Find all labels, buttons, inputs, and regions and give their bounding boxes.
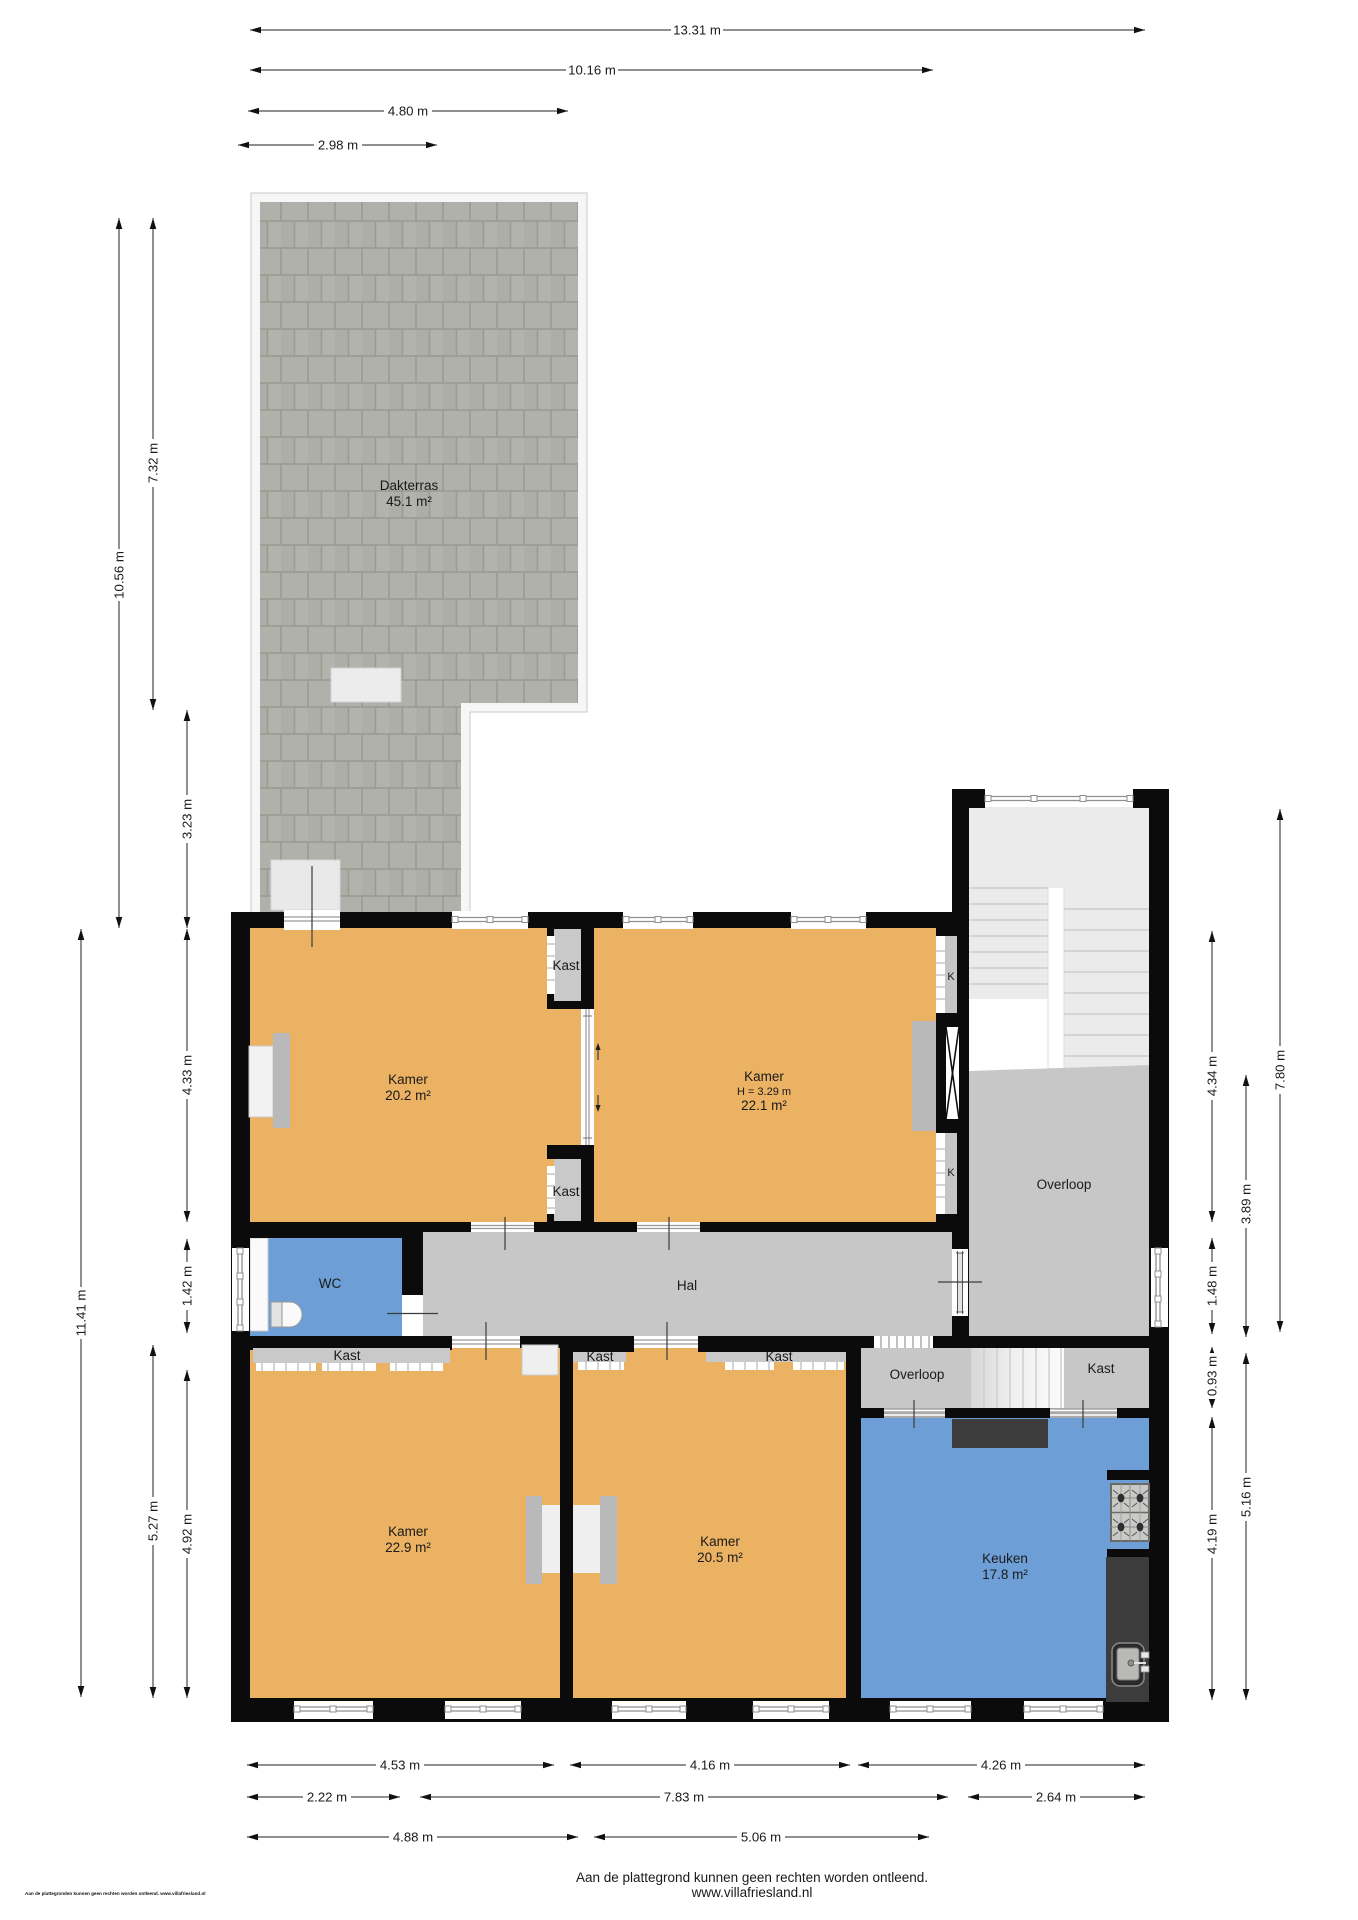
svg-text:4.80 m: 4.80 m [388, 104, 428, 119]
svg-text:2.64 m: 2.64 m [1036, 1790, 1076, 1805]
svg-text:7.32 m: 7.32 m [146, 443, 161, 483]
svg-text:45.1 m²: 45.1 m² [386, 494, 432, 509]
svg-text:Kast: Kast [333, 1348, 360, 1363]
svg-text:Kast: Kast [586, 1349, 613, 1364]
svg-text:4.33 m: 4.33 m [180, 1055, 195, 1095]
svg-text:22.1 m²: 22.1 m² [741, 1098, 787, 1113]
svg-text:11.41 m: 11.41 m [74, 1290, 89, 1337]
svg-text:4.26 m: 4.26 m [981, 1758, 1021, 1773]
svg-text:4.53 m: 4.53 m [380, 1758, 420, 1773]
svg-text:Hal: Hal [677, 1278, 697, 1293]
svg-text:Aan de plattegrond kunnen geen: Aan de plattegrond kunnen geen rechten w… [576, 1870, 928, 1885]
svg-text:WC: WC [319, 1276, 342, 1291]
svg-text:Kast: Kast [552, 958, 579, 973]
svg-text:5.16 m: 5.16 m [1239, 1477, 1254, 1517]
svg-text:7.80 m: 7.80 m [1273, 1050, 1288, 1090]
svg-text:Aan de plattegronden kunnen ge: Aan de plattegronden kunnen geen rechten… [25, 1891, 206, 1896]
svg-text:K: K [947, 1167, 955, 1179]
svg-text:Kast: Kast [1087, 1361, 1114, 1376]
svg-text:13.31 m: 13.31 m [673, 23, 721, 38]
svg-text:Kamer: Kamer [388, 1072, 428, 1087]
svg-text:7.83 m: 7.83 m [664, 1790, 704, 1805]
svg-text:K: K [947, 971, 955, 983]
svg-text:3.89 m: 3.89 m [1239, 1184, 1254, 1224]
svg-text:10.16 m: 10.16 m [568, 63, 616, 78]
svg-text:2.22 m: 2.22 m [307, 1790, 347, 1805]
svg-text:Keuken: Keuken [982, 1551, 1028, 1566]
svg-text:Kast: Kast [765, 1349, 792, 1364]
svg-text:10.56 m: 10.56 m [112, 551, 127, 599]
svg-text:Overloop: Overloop [1037, 1177, 1092, 1192]
svg-text:1.48 m: 1.48 m [1205, 1266, 1220, 1306]
svg-text:20.5 m²: 20.5 m² [697, 1550, 743, 1565]
svg-text:4.88 m: 4.88 m [393, 1830, 433, 1845]
svg-text:5.06 m: 5.06 m [741, 1830, 781, 1845]
svg-text:17.8 m²: 17.8 m² [982, 1567, 1028, 1582]
svg-text:4.34 m: 4.34 m [1205, 1056, 1220, 1096]
svg-text:4.19 m: 4.19 m [1205, 1514, 1220, 1554]
svg-text:H = 3.29 m: H = 3.29 m [737, 1086, 791, 1098]
svg-text:www.villafriesland.nl: www.villafriesland.nl [691, 1885, 813, 1900]
svg-text:4.16 m: 4.16 m [690, 1758, 730, 1773]
svg-text:Kamer: Kamer [700, 1534, 740, 1549]
svg-text:Overloop: Overloop [890, 1367, 945, 1382]
svg-text:3.23 m: 3.23 m [180, 799, 195, 839]
svg-text:0.93 m: 0.93 m [1205, 1356, 1220, 1396]
svg-text:22.9 m²: 22.9 m² [385, 1540, 431, 1555]
svg-text:5.27 m: 5.27 m [146, 1501, 161, 1541]
svg-text:Kamer: Kamer [388, 1524, 428, 1539]
svg-text:Kamer: Kamer [744, 1069, 784, 1084]
svg-text:Dakterras: Dakterras [380, 478, 439, 493]
svg-text:1.42 m: 1.42 m [180, 1266, 195, 1306]
svg-text:20.2 m²: 20.2 m² [385, 1088, 431, 1103]
svg-text:4.92 m: 4.92 m [180, 1514, 195, 1554]
svg-text:Kast: Kast [552, 1184, 579, 1199]
svg-text:2.98 m: 2.98 m [318, 138, 358, 153]
